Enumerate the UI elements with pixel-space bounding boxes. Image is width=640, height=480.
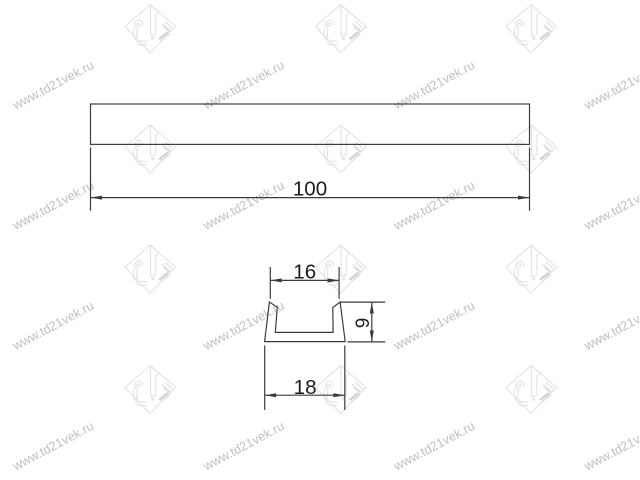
svg-text:www.td21vek.ru: www.td21vek.ru bbox=[200, 419, 287, 474]
svg-text:www.td21vek.ru: www.td21vek.ru bbox=[200, 58, 287, 113]
svg-text:www.td21vek.ru: www.td21vek.ru bbox=[200, 178, 287, 233]
svg-text:www.td21vek.ru: www.td21vek.ru bbox=[581, 58, 640, 113]
svg-text:www.td21vek.ru: www.td21vek.ru bbox=[10, 178, 97, 233]
svg-text:www.td21vek.ru: www.td21vek.ru bbox=[10, 299, 97, 354]
svg-text:16: 16 bbox=[293, 260, 316, 283]
svg-text:www.td21vek.ru: www.td21vek.ru bbox=[581, 178, 640, 233]
svg-text:www.td21vek.ru: www.td21vek.ru bbox=[581, 419, 640, 474]
svg-text:www.td21vek.ru: www.td21vek.ru bbox=[391, 299, 478, 354]
svg-text:9: 9 bbox=[353, 318, 374, 329]
svg-text:www.td21vek.ru: www.td21vek.ru bbox=[391, 58, 478, 113]
svg-text:18: 18 bbox=[294, 376, 317, 399]
svg-text:100: 100 bbox=[293, 177, 327, 200]
svg-text:www.td21vek.ru: www.td21vek.ru bbox=[391, 419, 478, 474]
svg-text:www.td21vek.ru: www.td21vek.ru bbox=[581, 299, 640, 354]
svg-text:www.td21vek.ru: www.td21vek.ru bbox=[391, 178, 478, 233]
svg-text:www.td21vek.ru: www.td21vek.ru bbox=[10, 419, 97, 474]
svg-text:www.td21vek.ru: www.td21vek.ru bbox=[10, 58, 97, 113]
svg-text:www.td21vek.ru: www.td21vek.ru bbox=[200, 299, 287, 354]
